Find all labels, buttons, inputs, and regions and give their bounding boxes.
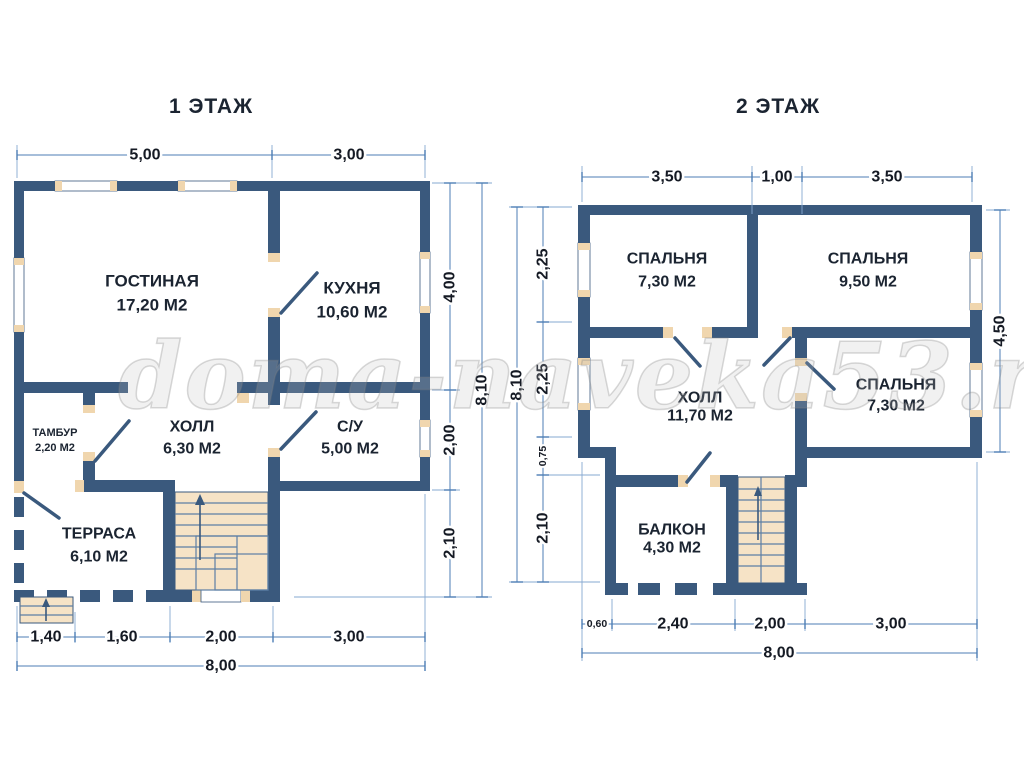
door-jamb xyxy=(970,410,982,417)
door-swing xyxy=(95,421,129,461)
window xyxy=(970,363,982,417)
room-label-su-area: 5,00 М2 xyxy=(321,441,379,458)
door-jamb xyxy=(702,327,712,338)
dim-label: 3,50 xyxy=(651,169,682,186)
door-jamb xyxy=(970,363,982,370)
door-jamb xyxy=(83,452,95,461)
window xyxy=(420,252,430,313)
window xyxy=(578,358,590,410)
door-jamb xyxy=(230,181,237,191)
wall-segment xyxy=(675,583,697,595)
wall-segment xyxy=(970,215,982,252)
door-jamb xyxy=(237,393,249,403)
wall-segment xyxy=(83,393,95,405)
wall-segment xyxy=(237,181,430,191)
wall-segment xyxy=(795,447,982,458)
room-label-balkon-area: 4,30 М2 xyxy=(643,540,701,557)
door-jamb xyxy=(192,590,201,602)
dim-label: 2,40 xyxy=(657,616,688,633)
door-jamb xyxy=(14,481,24,493)
dim-label: 5,00 xyxy=(129,147,160,164)
dim-label: 4,50 xyxy=(992,315,1009,346)
door-jamb xyxy=(55,181,62,191)
wall-segment xyxy=(420,191,430,252)
wall-segment xyxy=(268,457,280,491)
door-swing xyxy=(675,338,700,366)
wall-segment xyxy=(638,583,660,595)
wall-segment xyxy=(792,327,982,338)
dim-label: 3,00 xyxy=(875,616,906,633)
dim-label-total: 8,10 xyxy=(509,369,526,400)
dim-label: 2,10 xyxy=(535,512,552,543)
room-label-gostinaya-name: ГОСТИНАЯ xyxy=(105,272,199,291)
dim-label-total: 8,00 xyxy=(205,658,236,675)
door-jamb xyxy=(663,327,673,338)
wall-segment xyxy=(237,382,430,393)
dim-label: 2,10 xyxy=(442,527,459,558)
door-jamb xyxy=(241,590,250,602)
room-label-gostinaya-area: 17,20 М2 xyxy=(117,296,188,315)
room-label-kuhnya-name: КУХНЯ xyxy=(323,279,380,298)
door-jamb xyxy=(710,475,720,487)
door-jamb xyxy=(420,252,430,259)
dim-label: 0,60 xyxy=(587,618,608,630)
door-jamb xyxy=(578,358,590,365)
door-swing xyxy=(807,363,834,389)
door-jamb xyxy=(578,290,590,297)
wall-segment xyxy=(578,205,982,215)
staircase-1 xyxy=(175,492,268,590)
wall-segment xyxy=(163,492,175,602)
room-label-kuhnya-area: 10,60 М2 xyxy=(317,303,388,322)
dim-label: 3,50 xyxy=(871,169,902,186)
dim-label-total: 8,10 xyxy=(474,374,491,405)
room-label-terrasa-name: ТЕРРАСА xyxy=(62,526,137,543)
dim-label: 2,00 xyxy=(754,616,785,633)
door-jamb xyxy=(83,405,95,413)
floor-plan-1: 5,00 3,00 4,00 2,00 2,10 8,10 1,40 1,60 … xyxy=(14,145,492,675)
wall-segment xyxy=(605,447,616,595)
wall-segment xyxy=(117,181,178,191)
room-label-spalnya2-area: 9,50 М2 xyxy=(839,274,897,291)
wall-segment xyxy=(747,215,758,327)
floor-plan-2: 3,50 1,00 3,50 2,25 2,25 0,75 2,10 8,10 … xyxy=(509,166,1011,662)
wall-segment xyxy=(712,327,758,338)
window xyxy=(970,252,982,310)
door-jamb xyxy=(578,403,590,410)
window xyxy=(178,181,237,191)
wall-segment xyxy=(616,475,678,487)
dim-label: 2,25 xyxy=(535,363,552,394)
door-swing xyxy=(24,493,59,518)
door-swing xyxy=(281,412,316,449)
dim-label: 2,00 xyxy=(205,629,236,646)
door-jamb xyxy=(795,358,807,366)
door-jamb xyxy=(14,325,24,332)
dim-label: 0,75 xyxy=(537,446,549,467)
dim-label: 1,40 xyxy=(30,629,61,646)
wall-segment xyxy=(795,338,807,358)
dim-label: 2,00 xyxy=(442,424,459,455)
room-label-holl2-name: ХОЛЛ xyxy=(678,390,723,407)
wall-segment xyxy=(14,332,24,481)
staircase-2 xyxy=(738,477,785,583)
door-swing xyxy=(687,453,710,482)
wall-segment xyxy=(590,327,663,338)
wall-segment xyxy=(250,590,280,602)
room-label-holl1-area: 6,30 М2 xyxy=(163,441,221,458)
room-label-su-name: С/У xyxy=(337,419,364,436)
porch-steps xyxy=(20,597,73,623)
wall-segment xyxy=(14,191,24,258)
dim-label: 1,60 xyxy=(106,629,137,646)
door-jamb xyxy=(795,393,807,401)
door-jamb xyxy=(970,252,982,259)
wall-segment xyxy=(578,297,590,358)
window xyxy=(55,181,117,191)
room-label-spalnya3-name: СПАЛЬНЯ xyxy=(856,377,937,394)
room-label-balkon-name: БАЛКОН xyxy=(638,522,706,539)
wall-segment xyxy=(14,181,55,191)
room-label-spalnya2-name: СПАЛЬНЯ xyxy=(828,251,909,268)
room-label-holl1-name: ХОЛЛ xyxy=(170,419,215,436)
door-jamb xyxy=(178,181,185,191)
wall-segment xyxy=(420,313,430,420)
window xyxy=(14,258,24,332)
dim-label: 4,00 xyxy=(442,271,459,302)
wall-segment xyxy=(578,215,590,243)
door-jamb xyxy=(970,303,982,310)
dim-label-total: 8,00 xyxy=(763,645,794,662)
wall-segment xyxy=(83,461,95,481)
door-jamb xyxy=(578,243,590,250)
dim-label: 2,25 xyxy=(535,248,552,279)
door-jamb xyxy=(268,253,280,262)
door-jamb xyxy=(268,308,280,317)
dim-label: 3,00 xyxy=(333,147,364,164)
dim-label: 1,00 xyxy=(761,169,792,186)
wall-segment xyxy=(268,191,280,253)
door-swing xyxy=(764,338,790,365)
room-label-spalnya3-area: 7,30 М2 xyxy=(867,398,925,415)
wall-segment xyxy=(84,480,175,492)
room-label-spalnya1-area: 7,30 М2 xyxy=(638,274,696,291)
room-label-spalnya1-name: СПАЛЬНЯ xyxy=(627,251,708,268)
dim-label: 3,00 xyxy=(333,629,364,646)
stair-floor xyxy=(175,492,268,590)
door-jamb xyxy=(420,306,430,313)
window xyxy=(201,590,241,602)
door-swing xyxy=(281,273,317,313)
room-label-terrasa-area: 6,10 М2 xyxy=(70,549,128,566)
window xyxy=(578,243,590,297)
room-label-tambur-name: ТАМБУР xyxy=(33,427,78,439)
door-jamb xyxy=(75,480,84,492)
door-jamb xyxy=(14,258,24,265)
wall-segment xyxy=(785,475,797,595)
room-label-holl2-area: 11,70 М2 xyxy=(667,408,733,425)
wall-segment xyxy=(268,481,430,491)
floor-plan-sheet: 1 ЭТАЖ 2 ЭТАЖ xyxy=(0,0,1024,768)
wall-segment xyxy=(14,382,128,393)
wall-segment xyxy=(726,477,738,595)
wall-segment xyxy=(163,590,192,602)
door-jamb xyxy=(420,450,430,457)
door-jamb xyxy=(110,181,117,191)
door-jamb xyxy=(420,420,430,427)
wall-segment xyxy=(605,583,628,595)
wall-segment xyxy=(713,583,807,595)
floor-plan-drawing: 5,00 3,00 4,00 2,00 2,10 8,10 1,40 1,60 … xyxy=(0,0,1024,768)
wall-segment xyxy=(268,491,280,602)
door-jamb xyxy=(268,448,280,457)
room-label-tambur-area: 2,20 М2 xyxy=(35,442,75,454)
